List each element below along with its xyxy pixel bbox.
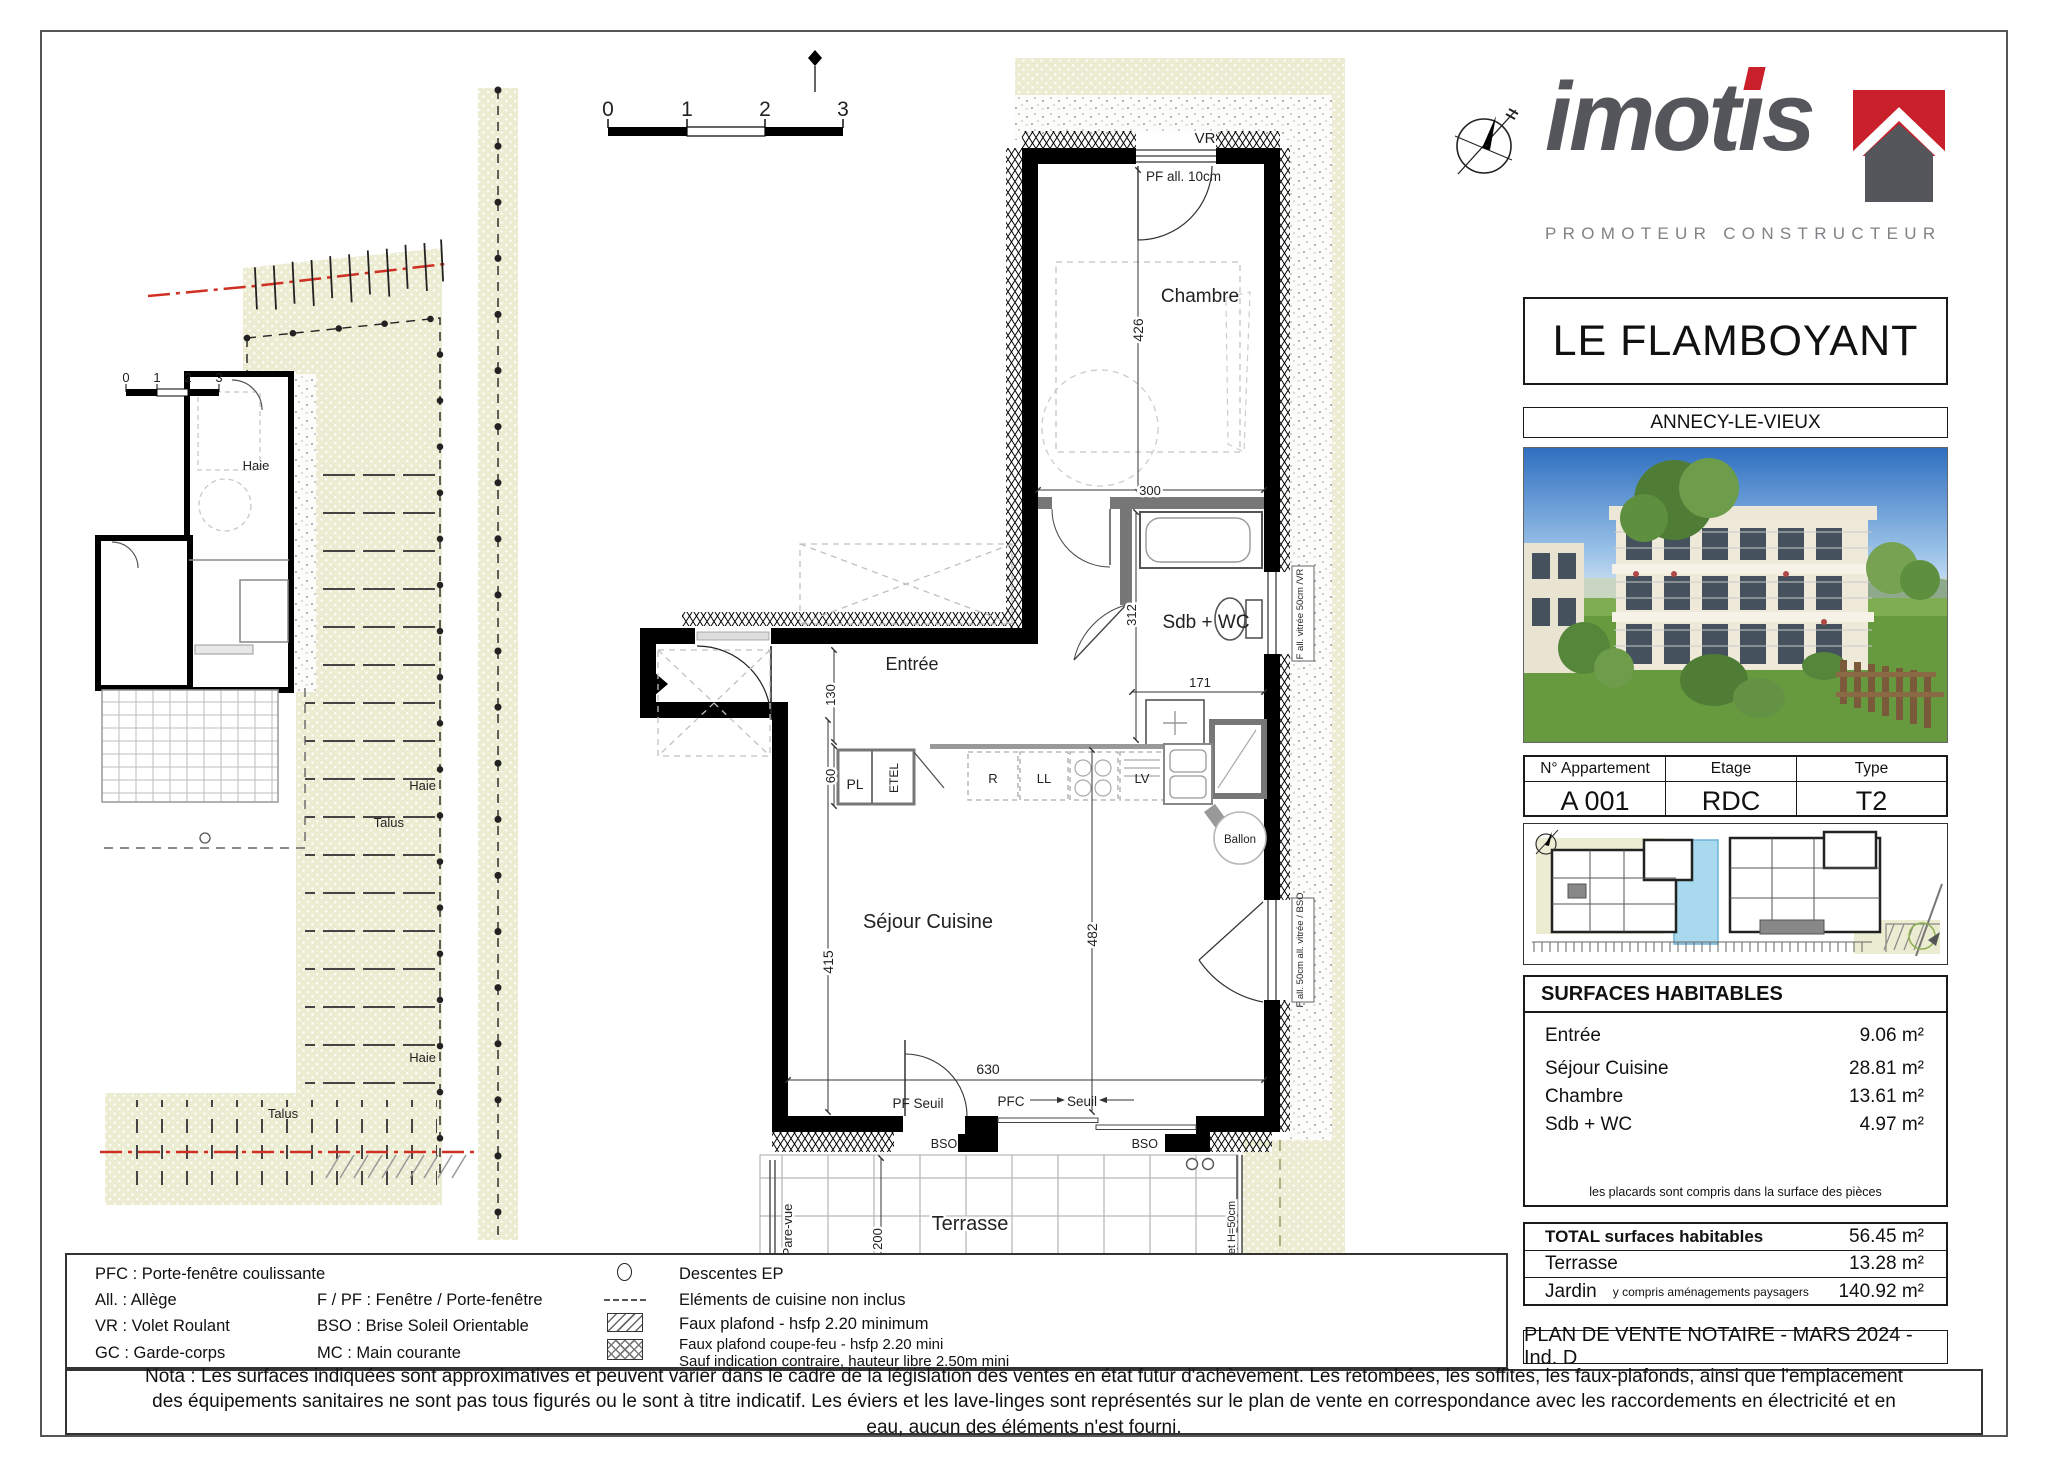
legend-plafond-label: Faux plafond - hsfp 2.20 minimum	[679, 1315, 928, 1334]
label-f-bso: F all. 50cm all. vitrée / BSO	[1295, 892, 1306, 1007]
surface-row-chambre: Chambre 13.61 m²	[1525, 1086, 1946, 1108]
surfaces-box: SURFACES HABITABLES Entrée 9.06 m² Séjou…	[1523, 975, 1948, 1207]
legend-cuisine-label: Eléments de cuisine non inclus	[679, 1291, 906, 1310]
plan-scale-3: 3	[837, 98, 849, 121]
dim-60: 60	[823, 769, 838, 783]
label-pf-seuil: PF Seuil	[892, 1096, 943, 1111]
legend-all: All. : Allège	[95, 1291, 177, 1310]
interior	[658, 262, 1266, 864]
total-row: TOTAL surfaces habitables 56.45 m²	[1525, 1224, 1946, 1250]
city-box: ANNECY-LE-VIEUX	[1523, 407, 1948, 438]
type-value: T2	[1797, 782, 1946, 816]
label-chambre: Chambre	[1161, 286, 1239, 307]
surface-value: 13.61 m²	[1849, 1086, 1924, 1108]
plan-sheet: 0 1 2 3 Haie Haie Talus Haie Talus	[0, 0, 2048, 1457]
logo-text-3: s	[1762, 62, 1813, 171]
label-terrasse: Terrasse	[932, 1213, 1009, 1235]
site-house	[98, 374, 316, 848]
label-bso-left: BSO	[931, 1137, 958, 1151]
type-header: Type	[1797, 757, 1946, 781]
jardin-sub-label: y compris aménagements paysagers	[1613, 1285, 1839, 1299]
city-label: ANNECY-LE-VIEUX	[1650, 412, 1820, 434]
site-talus-hatch-right	[305, 455, 437, 1085]
apartment-number-value: A 001	[1525, 782, 1666, 816]
legend-box: PFC : Porte-fenêtre coulissante All. : A…	[65, 1253, 1508, 1369]
label-seuil: Seuil	[1067, 1094, 1097, 1109]
residence-title: LE FLAMBOYANT	[1553, 317, 1919, 366]
jardin-value: 140.92 m²	[1838, 1281, 1924, 1303]
surface-label: Entrée	[1545, 1025, 1601, 1047]
label-kitchen-ll: LL	[1037, 771, 1051, 786]
jardin-row: Jardin y compris aménagements paysagers …	[1525, 1277, 1946, 1305]
dim-312: 312	[1124, 604, 1139, 626]
apartment-number-header: N° Appartement	[1525, 757, 1666, 781]
total-value: 56.45 m²	[1849, 1226, 1924, 1248]
imotis-logo: imotıs	[1545, 68, 1813, 165]
surface-row-entree: Entrée 9.06 m²	[1525, 1025, 1946, 1047]
faux-plafond-icon	[607, 1313, 643, 1332]
main-floor-plan: 0 1 2 3 VR PF all. 10cm Chambre 426 300 …	[470, 40, 1390, 1370]
legend-mc: MC : Main courante	[317, 1344, 461, 1363]
surface-label: Chambre	[1545, 1086, 1623, 1108]
logo-tagline: PROMOTEUR CONSTRUCTEUR	[1545, 224, 1950, 244]
site-scale-3: 3	[215, 370, 222, 385]
dim-630: 630	[976, 1061, 1000, 1077]
site-label-haie-3: Haie	[409, 1050, 436, 1065]
terrasse-row: Terrasse 13.28 m²	[1525, 1250, 1946, 1277]
legend-fpf: F / PF : Fenêtre / Porte-fenêtre	[317, 1291, 543, 1310]
legend-bso: BSO : Brise Soleil Orientable	[317, 1317, 529, 1336]
coupe-feu-icon	[607, 1339, 643, 1360]
jardin-label: Jardin	[1545, 1281, 1597, 1303]
legend-gc: GC : Garde-corps	[95, 1344, 225, 1363]
surface-value: 4.97 m²	[1860, 1114, 1924, 1136]
totals-box: TOTAL surfaces habitables 56.45 m² Terra…	[1523, 1222, 1948, 1306]
surface-row-sdb: Sdb + WC 4.97 m²	[1525, 1114, 1946, 1136]
site-plan: 0 1 2 3 Haie Haie Talus Haie Talus	[50, 230, 480, 1240]
label-pare-vue: Pare-vue	[780, 1204, 795, 1257]
residence-title-box: LE FLAMBOYANT	[1523, 297, 1948, 385]
building-photo	[1523, 447, 1948, 743]
dim-415: 415	[820, 950, 836, 974]
dim-426: 426	[1130, 318, 1146, 342]
surfaces-title: SURFACES HABITABLES	[1525, 977, 1946, 1013]
label-pf-all10: PF all. 10cm	[1146, 169, 1221, 184]
plan-scale-0: 0	[602, 98, 614, 121]
plan-scale-2: 2	[759, 98, 771, 121]
total-label: TOTAL surfaces habitables	[1545, 1227, 1763, 1247]
plan-scale-bar: 0 1 2 3	[602, 98, 849, 136]
legend-ep-label: Descentes EP	[679, 1265, 784, 1284]
site-label-haie-1: Haie	[243, 458, 270, 473]
surface-value: 28.81 m²	[1849, 1058, 1924, 1080]
floor-value: RDC	[1666, 782, 1797, 816]
site-label-talus-1: Talus	[374, 815, 405, 830]
dim-200: 200	[870, 1228, 885, 1250]
key-plan	[1523, 823, 1948, 965]
site-label-talus-2: Talus	[268, 1106, 299, 1121]
legend-coupefeu-label: Faux plafond coupe-feu - hsfp 2.20 mini	[679, 1336, 943, 1353]
site-scale-1: 1	[153, 370, 160, 385]
surface-value: 9.06 m²	[1860, 1025, 1924, 1047]
stamp-box: PLAN DE VENTE NOTAIRE - MARS 2024 - Ind.…	[1523, 1330, 1948, 1364]
terrasse-label: Terrasse	[1545, 1253, 1618, 1275]
surface-label: Sdb + WC	[1545, 1114, 1632, 1136]
label-kitchen-lv: LV	[1135, 771, 1150, 786]
north-arrow-icon	[1446, 106, 1526, 186]
label-kitchen-r: R	[988, 771, 997, 786]
nota-text: Nota : Les surfaces indiquées sont appro…	[134, 1364, 1914, 1441]
label-f-vitree-vr: F all. vitrée 50cm /VR	[1295, 568, 1306, 659]
surface-label: Séjour Cuisine	[1545, 1058, 1669, 1080]
logo-text-1: imot	[1545, 62, 1738, 171]
plan-scale-1: 1	[681, 98, 693, 121]
surfaces-note: les placards sont compris dans la surfac…	[1525, 1185, 1946, 1199]
site-label-haie-2: Haie	[409, 778, 436, 793]
label-entree: Entrée	[885, 654, 938, 674]
dim-130: 130	[823, 684, 838, 706]
site-scale-2: 2	[184, 370, 191, 385]
dim-482: 482	[1084, 923, 1100, 947]
legend-vr: VR : Volet Roulant	[95, 1317, 230, 1336]
dim-171: 171	[1189, 675, 1211, 690]
label-ballon: Ballon	[1224, 834, 1256, 846]
label-pfc: PFC	[998, 1094, 1025, 1109]
floor-header: Etage	[1666, 757, 1797, 781]
label-sejour: Séjour Cuisine	[863, 911, 993, 933]
surface-row-sejour: Séjour Cuisine 28.81 m²	[1525, 1058, 1946, 1080]
label-sdb-wc: Sdb + WC	[1162, 612, 1249, 633]
nota-box: Nota : Les surfaces indiquées sont appro…	[65, 1369, 1983, 1435]
legend-pfc: PFC : Porte-fenêtre coulissante	[95, 1265, 325, 1284]
label-pl: PL	[846, 776, 863, 792]
apartment-table: N° Appartement Etage Type A 001 RDC T2	[1523, 755, 1948, 817]
imotis-house-icon	[1843, 90, 1955, 208]
cuisine-dash-icon	[604, 1299, 646, 1301]
label-vr: VR	[1195, 130, 1216, 147]
survey-marker	[808, 50, 822, 92]
descentes-ep-icon	[617, 1263, 632, 1281]
dim-300: 300	[1139, 483, 1161, 498]
label-etel: ETEL	[887, 763, 901, 793]
site-scale-0: 0	[122, 370, 129, 385]
terrasse-value: 13.28 m²	[1849, 1253, 1924, 1275]
label-bso-right: BSO	[1132, 1137, 1159, 1151]
